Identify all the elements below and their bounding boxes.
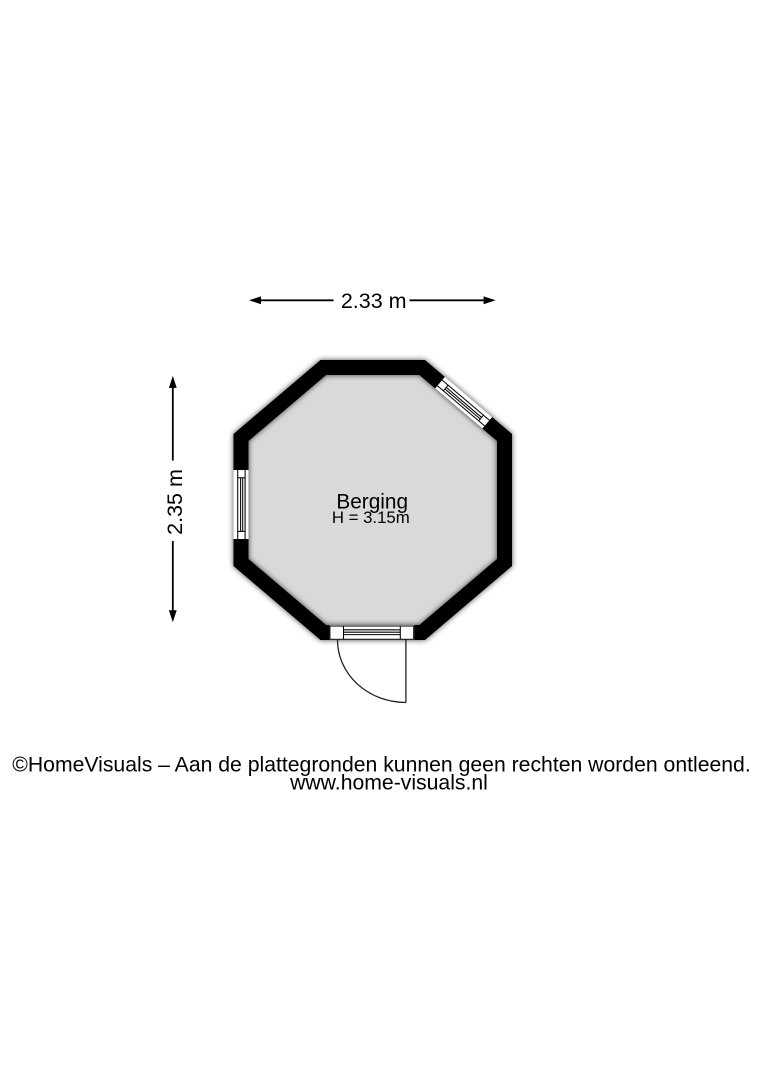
svg-text:2.33 m: 2.33 m: [341, 289, 407, 313]
svg-text:H = 3.15m: H = 3.15m: [332, 508, 410, 527]
svg-text:2.35 m: 2.35 m: [163, 469, 187, 535]
svg-text:www.home-visuals.nl: www.home-visuals.nl: [289, 772, 488, 795]
